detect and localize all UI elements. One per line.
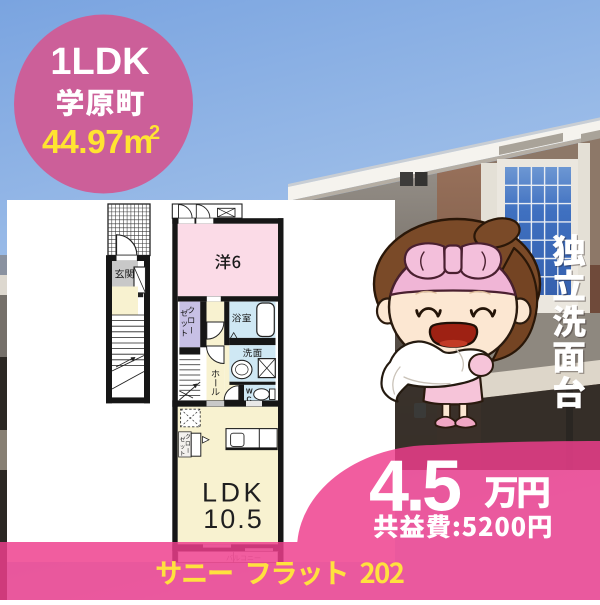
svg-text:2: 2 [149,122,160,144]
svg-text:1LDK: 1LDK [50,41,150,83]
svg-text:LDK: LDK [202,478,265,508]
svg-text:W: W [246,389,253,396]
svg-text:10.5: 10.5 [203,504,264,534]
svg-text:44.97m: 44.97m [42,124,153,161]
